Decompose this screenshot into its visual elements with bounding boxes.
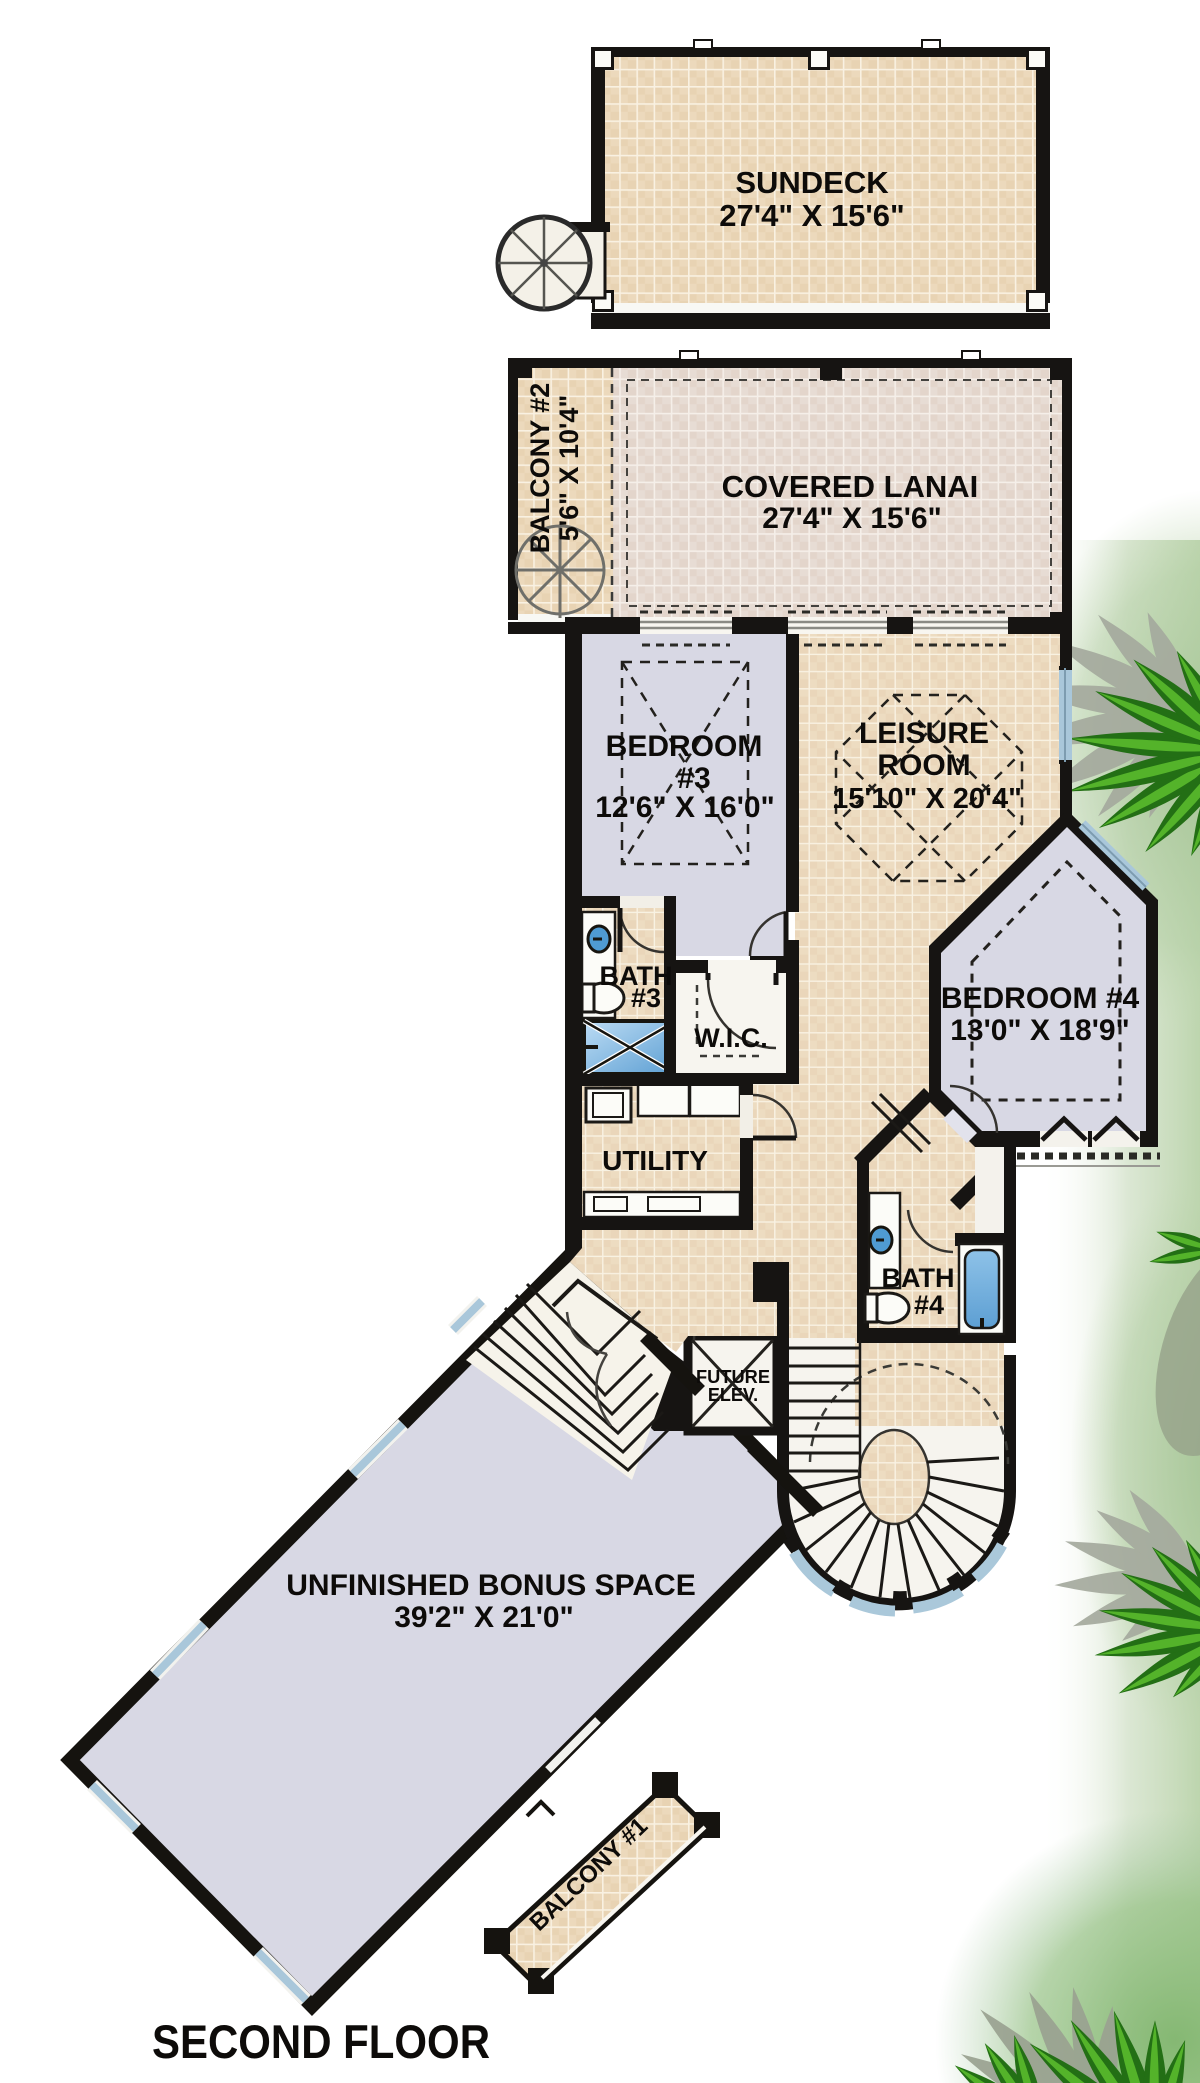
svg-text:FUTURE: FUTURE xyxy=(696,1367,770,1387)
svg-text:UTILITY: UTILITY xyxy=(602,1145,708,1176)
svg-text:5'6" X 10'4": 5'6" X 10'4" xyxy=(554,395,584,542)
svg-text:BATH: BATH xyxy=(882,1263,955,1293)
svg-text:39'2" X 21'0": 39'2" X 21'0" xyxy=(394,1601,574,1634)
svg-text:LEISURE: LEISURE xyxy=(859,717,989,750)
svg-text:#4: #4 xyxy=(914,1290,944,1320)
svg-text:SECOND FLOOR: SECOND FLOOR xyxy=(152,2015,490,2068)
svg-text:BALCONY #2: BALCONY #2 xyxy=(525,383,555,554)
svg-text:ELEV.: ELEV. xyxy=(708,1385,758,1405)
svg-text:27'4" X 15'6": 27'4" X 15'6" xyxy=(762,502,942,535)
svg-text:W.I.C.: W.I.C. xyxy=(694,1023,768,1053)
svg-text:ROOM: ROOM xyxy=(877,749,970,782)
svg-text:SUNDECK: SUNDECK xyxy=(735,165,889,200)
svg-text:27'4" X 15'6": 27'4" X 15'6" xyxy=(719,198,905,233)
svg-text:12'6" X 16'0": 12'6" X 16'0" xyxy=(595,791,775,824)
svg-text:UNFINISHED BONUS SPACE: UNFINISHED BONUS SPACE xyxy=(286,1569,695,1602)
svg-text:COVERED LANAI: COVERED LANAI xyxy=(722,469,979,504)
svg-text:BEDROOM: BEDROOM xyxy=(606,730,763,763)
svg-text:15'10" X 20'4": 15'10" X 20'4" xyxy=(832,783,1022,815)
svg-text:#3: #3 xyxy=(631,983,661,1013)
svg-text:13'0" X 18'9": 13'0" X 18'9" xyxy=(950,1014,1130,1047)
svg-text:BEDROOM #4: BEDROOM #4 xyxy=(941,982,1140,1015)
